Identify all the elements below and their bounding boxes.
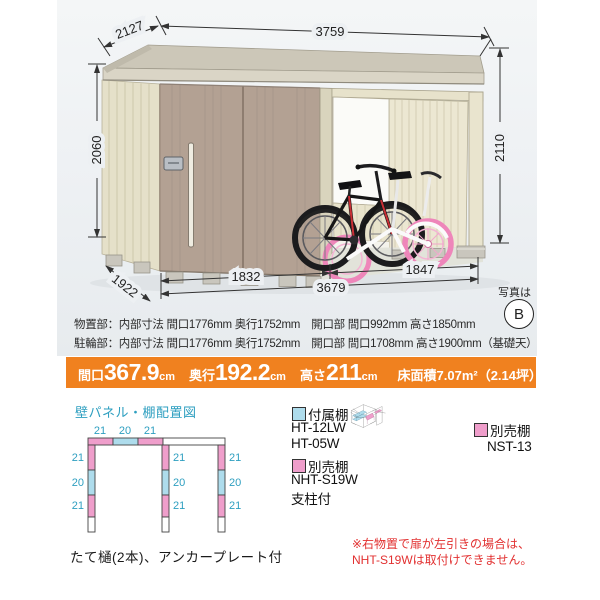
- warning-line-2: NHT-S19Wは取付けできません。: [352, 552, 532, 568]
- dim-height-right: 2110: [492, 134, 507, 162]
- optional-left-note: 支柱付: [291, 488, 331, 508]
- photo-ref-label: 写真は: [498, 284, 531, 300]
- corner-post: [469, 92, 483, 249]
- dim-depth-top: 2127: [113, 18, 145, 42]
- dim-width-top: 3759: [316, 24, 345, 39]
- dim-width-bike: 1847: [406, 262, 435, 277]
- plan-left-2: 21: [72, 500, 84, 512]
- plan-right-1: 20: [229, 477, 241, 489]
- floor-area-label: 床面積: [398, 365, 437, 384]
- optional-shelf-nht: [366, 413, 374, 420]
- dim-height-left: 2060: [89, 136, 104, 165]
- plan-mid-2: 21: [173, 500, 185, 512]
- plan-top-1: 20: [119, 425, 131, 437]
- dim-width-storage: 1832: [232, 269, 261, 284]
- plan-right-0: 21: [229, 452, 241, 464]
- eaves-note: たて樋(2本)、アンカープレート付: [70, 546, 283, 566]
- size-value-height: 211: [326, 357, 362, 388]
- plan-right-2: 21: [229, 500, 241, 512]
- size-value-depth: 192.2: [215, 357, 270, 388]
- size-label-height: 高さ: [300, 365, 326, 384]
- optional-right-label: 別売棚: [490, 420, 531, 440]
- size-value-width: 367.9: [104, 357, 159, 388]
- legend-optional-right: 別売棚: [474, 420, 531, 440]
- warning-note: ※右物置で扉が左引きの場合は、 NHT-S19Wは取付けできません。: [352, 536, 532, 568]
- dim-width-total: 3679: [317, 280, 346, 295]
- plan-title: 壁パネル・棚配置図: [75, 402, 197, 421]
- size-unit-depth: cm: [270, 371, 286, 383]
- attached-model-1: HT-12LW: [291, 420, 346, 435]
- spec-line-storage: 物置部：内部寸法 間口1776mm 奥行1752mm 開口部 間口992mm 高…: [74, 316, 544, 332]
- plan-mid-0: 21: [173, 452, 185, 464]
- plan-top-0: 21: [94, 425, 106, 437]
- optional-left-model: NHT-S19W: [291, 472, 358, 487]
- size-unit-height: cm: [362, 371, 378, 383]
- plan-left-1: 20: [72, 477, 84, 489]
- size-summary-bar: 間口 367.9 cm 奥行 192.2 cm 高さ 211 cm 床面積 7.…: [66, 357, 536, 388]
- wall-panel-plan: 21 20 21 21 20 21 21 20 21 21 20 21: [62, 420, 257, 542]
- plan-top-2: 21: [144, 425, 156, 437]
- spec-line-bike: 駐輪部：内部寸法 間口1776mm 奥行1752mm 開口部 間口1708mm …: [74, 335, 544, 351]
- dim-depth-bottom: 1922: [109, 271, 141, 301]
- optional-right-swatch: [474, 423, 488, 437]
- attached-shelf-swatch: [292, 407, 306, 421]
- product-spec-sheet: 2127 3759 2060 2110 1922 1832 1847 3679 …: [0, 0, 600, 600]
- size-unit-width: cm: [159, 371, 175, 383]
- photo-ref-letter: B: [514, 306, 524, 323]
- optional-left-swatch: [292, 459, 306, 473]
- optional-right-model: NST-13: [487, 439, 532, 454]
- floor-area-value: 7.07m²（2.14坪）: [437, 365, 543, 384]
- warning-line-1: ※右物置で扉が左引きの場合は、: [352, 536, 532, 552]
- attached-model-2: HT-05W: [291, 436, 339, 451]
- size-label-width: 間口: [78, 365, 104, 384]
- plan-mid-1: 20: [173, 477, 185, 489]
- size-label-depth: 奥行: [189, 365, 215, 384]
- plan-left-0: 21: [72, 452, 84, 464]
- door-handle: [189, 143, 194, 247]
- photo-ref-badge: B: [504, 299, 534, 329]
